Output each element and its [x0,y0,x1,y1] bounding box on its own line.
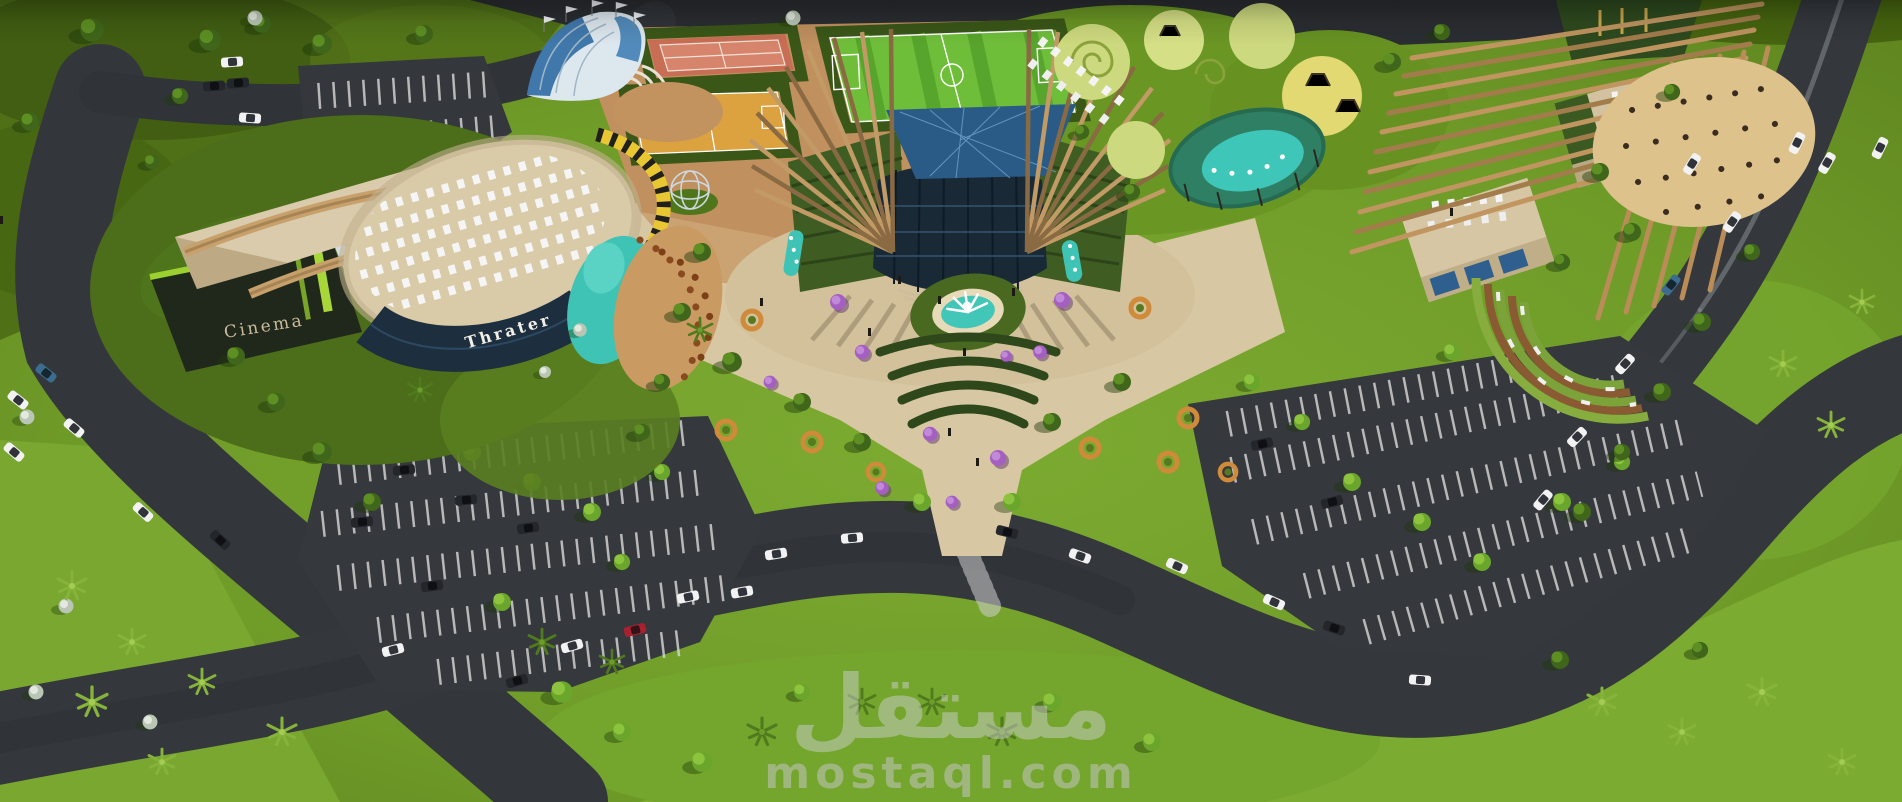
lighting-vignette [0,0,1902,180]
watermark-logo: مستقل [790,656,1112,759]
watermark: مستقل mostaql.com [764,656,1137,799]
watermark-domain: mostaql.com [764,748,1137,799]
glass-atrium [873,164,1047,293]
aerial-render: Cinema Thrater [0,0,1902,802]
